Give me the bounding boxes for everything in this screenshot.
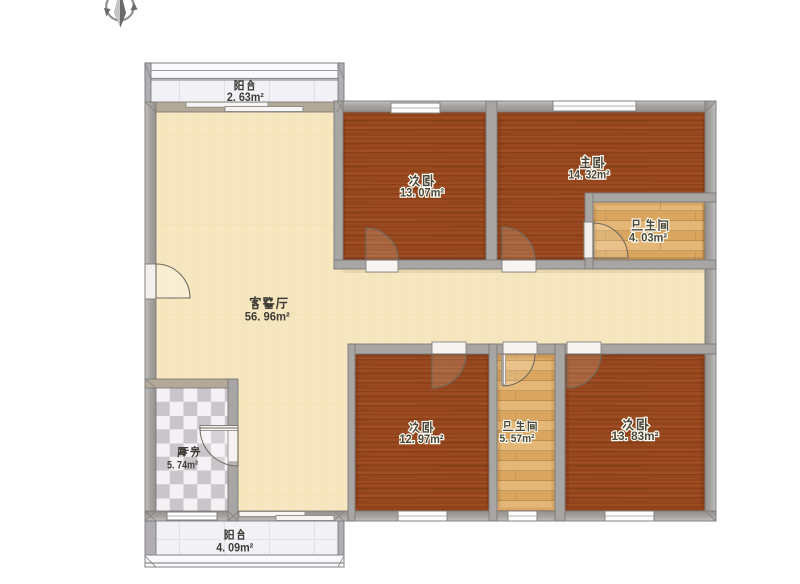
svg-text:2. 63m²: 2. 63m² xyxy=(227,92,264,104)
svg-text:13. 83m²: 13. 83m² xyxy=(612,429,659,443)
svg-text:56. 96m²: 56. 96m² xyxy=(245,310,290,324)
svg-text:13. 07m²: 13. 07m² xyxy=(400,185,444,199)
svg-text:4. 03m²: 4. 03m² xyxy=(629,230,667,244)
svg-text:5. 74m²: 5. 74m² xyxy=(167,459,198,471)
svg-text:5. 57m²: 5. 57m² xyxy=(500,433,535,445)
svg-text:4. 09m²: 4. 09m² xyxy=(216,540,253,554)
svg-text:12. 97m²: 12. 97m² xyxy=(400,432,444,446)
svg-text:14. 32m²: 14. 32m² xyxy=(569,167,610,181)
